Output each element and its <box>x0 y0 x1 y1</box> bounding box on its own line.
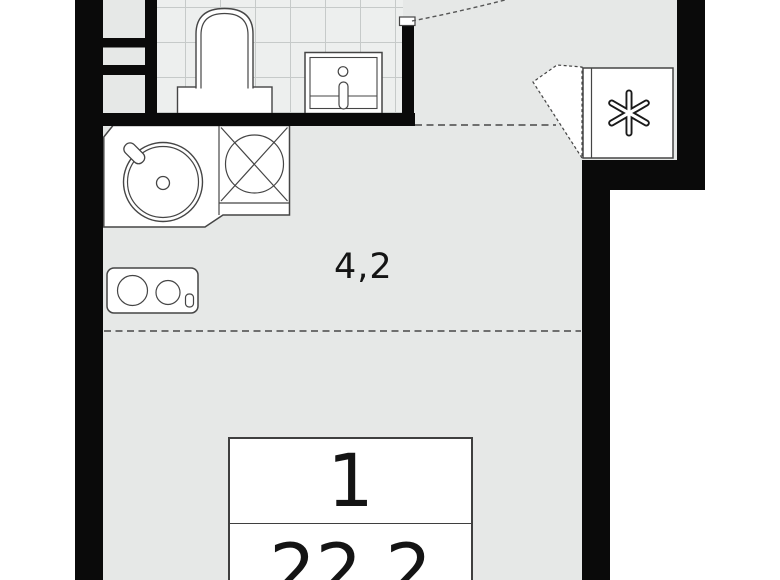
shaft-divider-top <box>103 38 145 48</box>
total-area-label: 22,2 <box>230 524 471 580</box>
floorplan: 4,2 1 22,2 <box>0 0 780 580</box>
wall-left <box>75 0 103 580</box>
wall-shaft-inner <box>145 0 157 126</box>
wall-bathroom-east <box>402 25 414 113</box>
kitchen-area-label: 4,2 <box>334 247 393 287</box>
wall-right-lower <box>582 160 610 580</box>
bathroom-sink-icon <box>305 53 382 114</box>
unit-info-box: 1 22,2 <box>228 437 473 580</box>
wall-bathroom-south <box>103 113 415 126</box>
kitchen-counter <box>104 126 290 228</box>
hob-icon <box>107 268 198 313</box>
unit-number-label: 1 <box>230 439 471 524</box>
washing-machine-icon <box>122 141 203 222</box>
wardrobe-box <box>583 68 673 158</box>
shaft-divider-bottom <box>103 65 145 75</box>
